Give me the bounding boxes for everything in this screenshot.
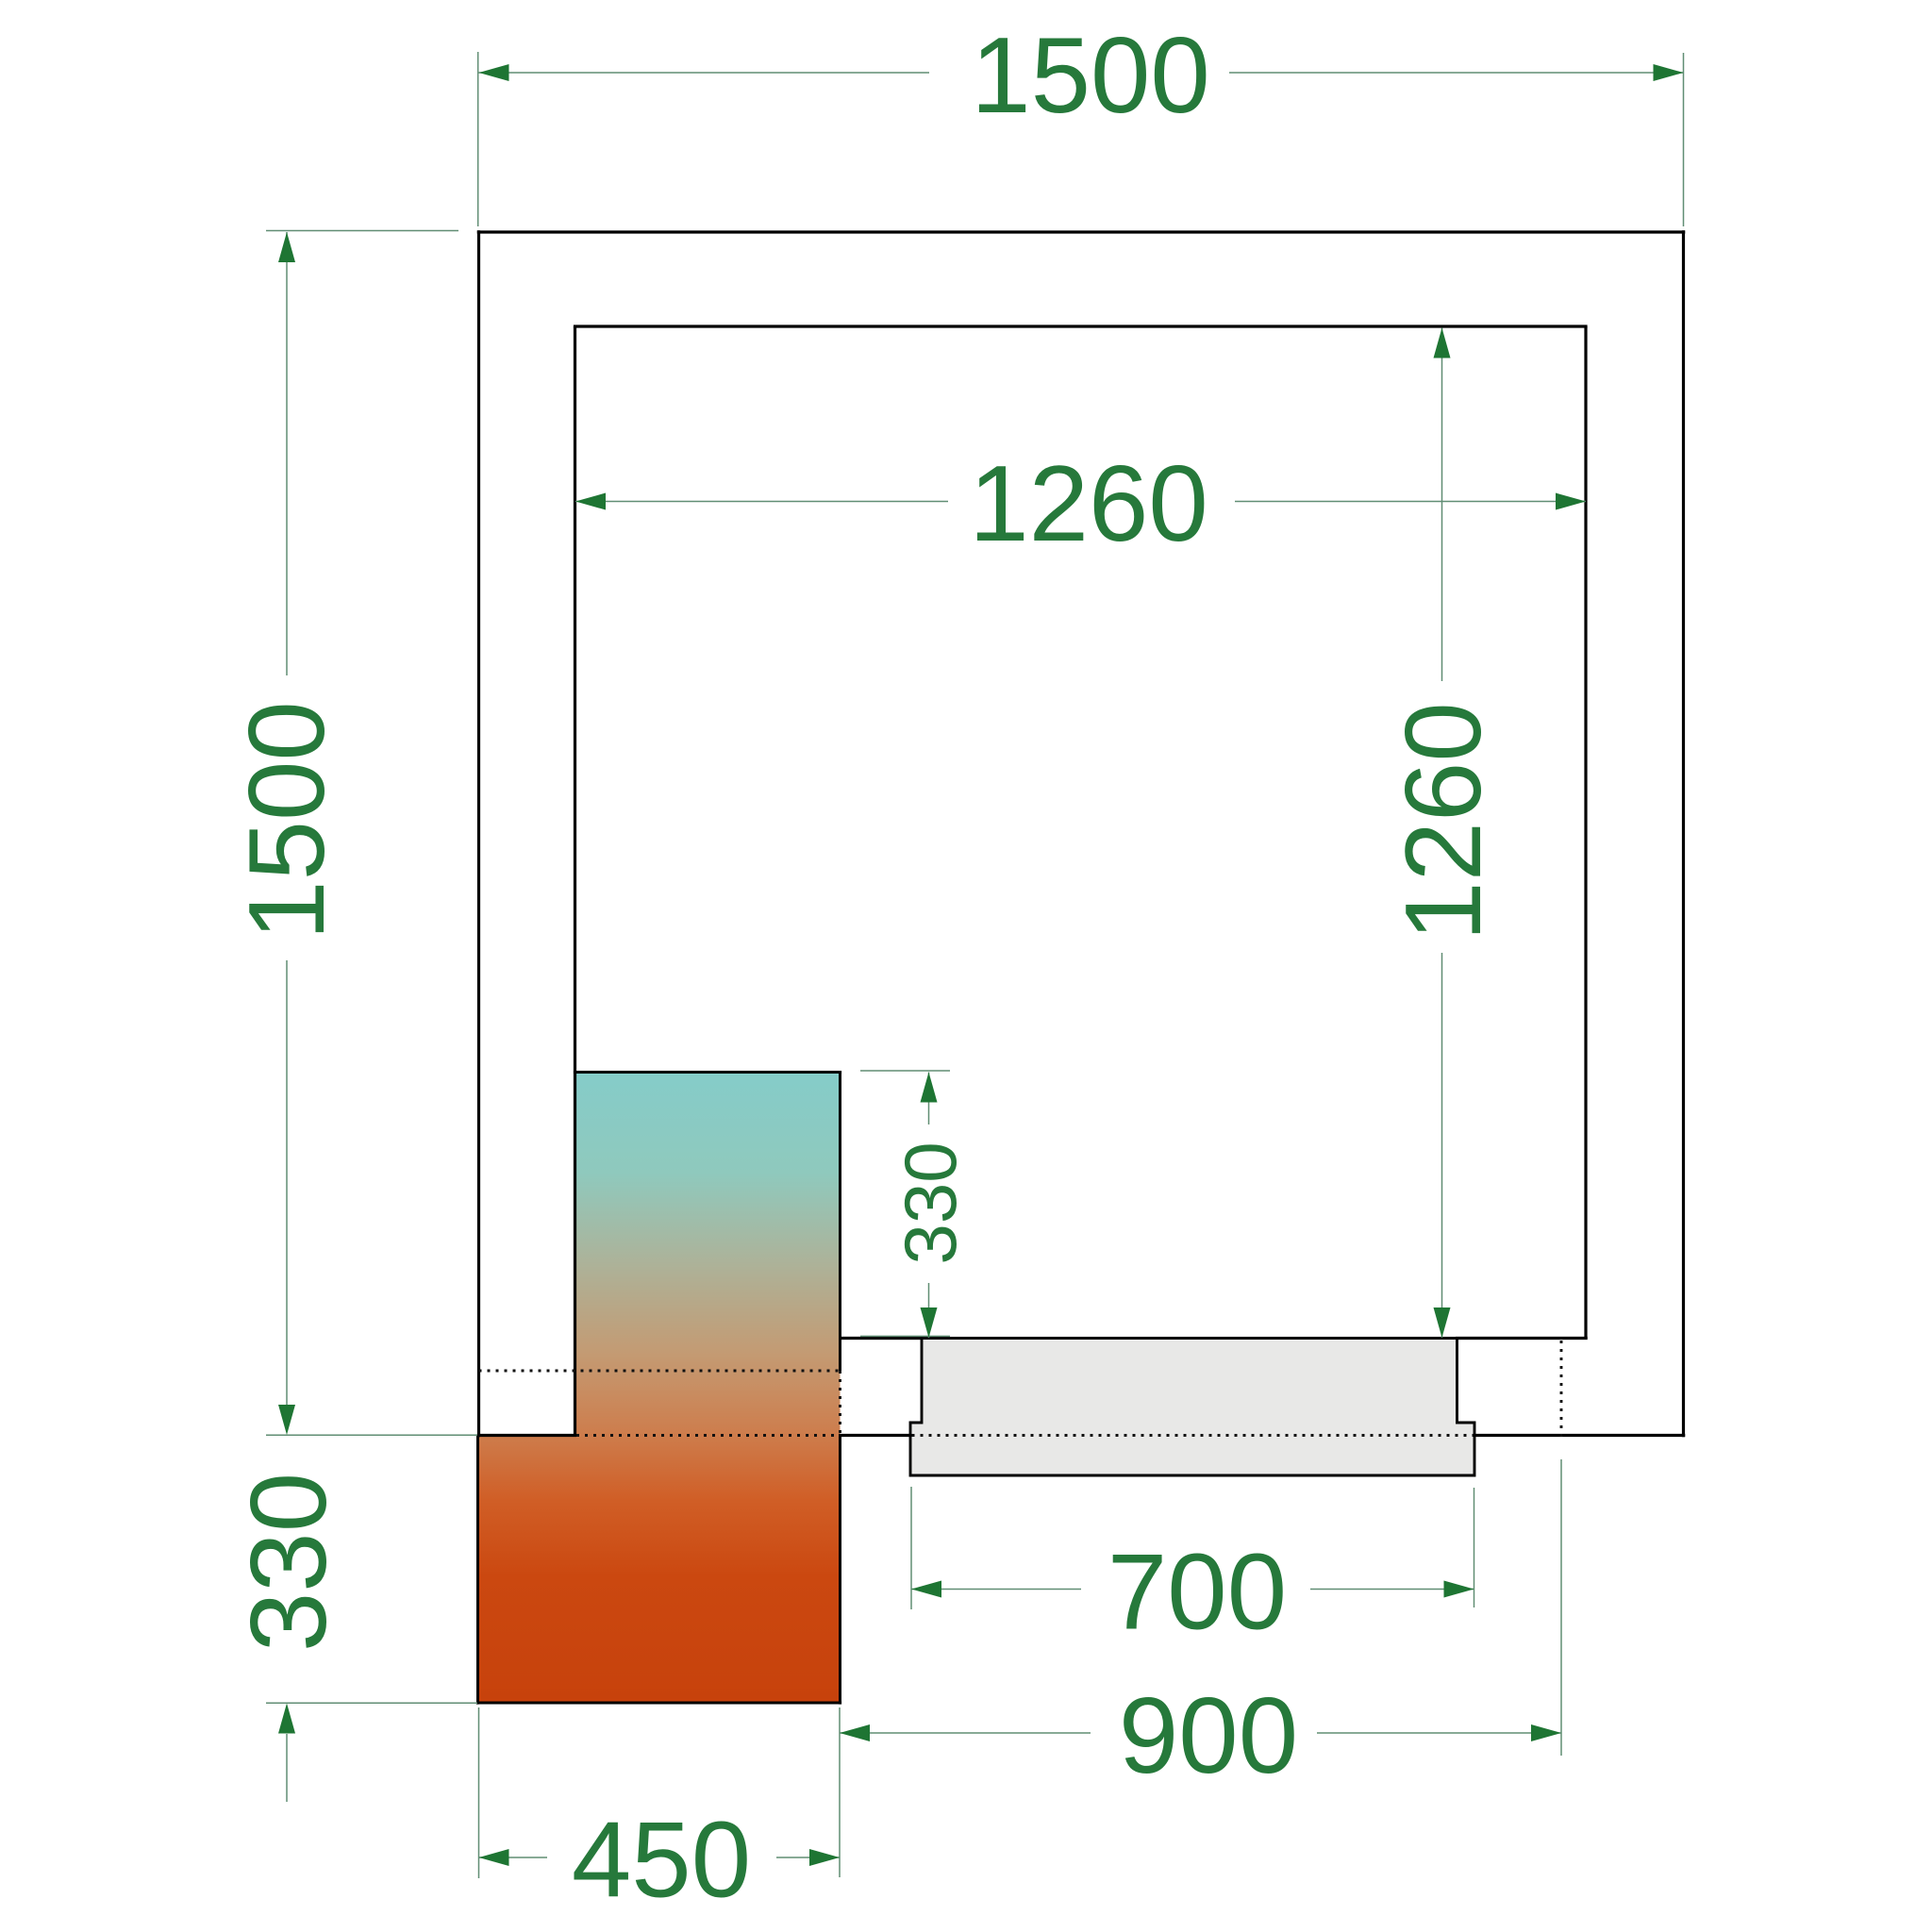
svg-text:330: 330 <box>889 1141 972 1264</box>
svg-text:330: 330 <box>229 1473 349 1652</box>
svg-text:700: 700 <box>1108 1532 1287 1652</box>
svg-text:1260: 1260 <box>1384 702 1504 941</box>
svg-text:1500: 1500 <box>971 16 1210 136</box>
svg-text:900: 900 <box>1119 1676 1298 1796</box>
svg-text:1260: 1260 <box>969 444 1208 564</box>
svg-text:450: 450 <box>572 1800 751 1920</box>
svg-text:1500: 1500 <box>227 701 347 941</box>
